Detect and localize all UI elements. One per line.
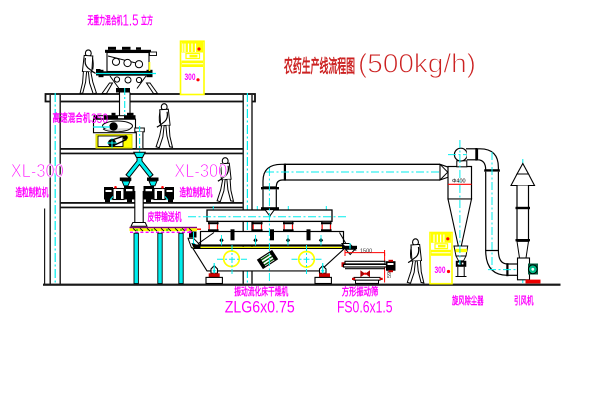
svg-text:方形振动筛: 方形振动筛: [342, 285, 379, 298]
svg-text:1500: 1500: [360, 249, 372, 255]
svg-text:XL-300: XL-300: [11, 160, 64, 181]
svg-text:皮带输送机: 皮带输送机: [147, 210, 182, 224]
svg-text:(500kg/h): (500kg/h): [358, 49, 476, 79]
svg-text:300: 300: [185, 72, 196, 82]
svg-text:ZLG6x0.75: ZLG6x0.75: [225, 298, 295, 317]
svg-text:XL-300: XL-300: [174, 160, 227, 181]
svg-text:300: 300: [435, 265, 446, 275]
svg-text:FS0.6x1.5: FS0.6x1.5: [337, 298, 393, 317]
svg-text:高速混合机: 高速混合机: [53, 111, 91, 125]
svg-text:无重力混合机: 无重力混合机: [87, 13, 123, 27]
svg-text:旋风除尘器: 旋风除尘器: [451, 294, 483, 307]
svg-text:引风机: 引风机: [514, 294, 534, 307]
svg-text:1.5: 1.5: [123, 13, 139, 30]
svg-text:造粒制粒机: 造粒制粒机: [16, 185, 49, 199]
svg-text:农药生产线流程图: 农药生产线流程图: [284, 56, 355, 77]
svg-text:350: 350: [91, 111, 108, 126]
svg-text:Φ400: Φ400: [452, 179, 466, 185]
svg-text:立方: 立方: [141, 13, 153, 27]
svg-text:造粒制粒机: 造粒制粒机: [180, 185, 213, 199]
svg-text:振动流化床干燥机: 振动流化床干燥机: [234, 285, 288, 298]
